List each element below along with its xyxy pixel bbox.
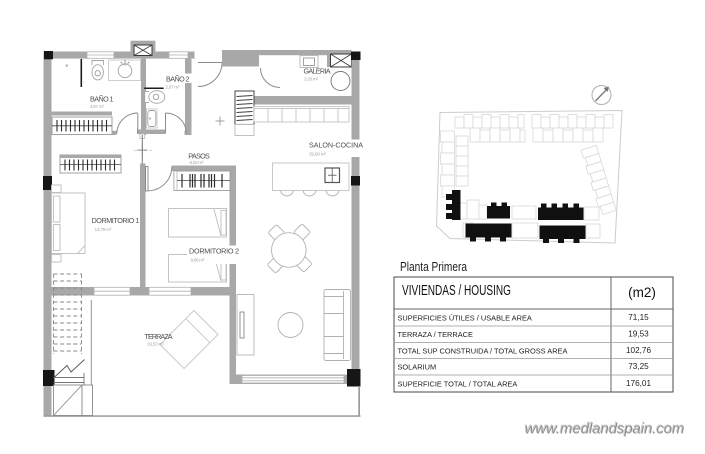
svg-text:71,15: 71,15 — [628, 313, 649, 322]
svg-text:SALON-COCINA: SALON-COCINA — [309, 141, 363, 150]
svg-text:TERRAZA / TERRACE: TERRAZA / TERRACE — [398, 330, 473, 339]
svg-text:DORMITORIO 1: DORMITORIO 1 — [92, 216, 140, 225]
svg-text:73,25: 73,25 — [628, 362, 649, 371]
svg-text:19,53 m²: 19,53 m² — [147, 342, 164, 348]
svg-text:19,53: 19,53 — [628, 330, 649, 339]
svg-text:GALERIA: GALERIA — [304, 67, 331, 76]
svg-text:SOLARIUM: SOLARIUM — [398, 363, 437, 372]
svg-text:DORMITORIO 2: DORMITORIO 2 — [189, 247, 239, 256]
svg-text:SUPERFICIES ÚTILES / USABLE AR: SUPERFICIES ÚTILES / USABLE AREA — [398, 314, 532, 323]
svg-text:TERRAZA: TERRAZA — [145, 332, 173, 341]
svg-text:BAÑO 1: BAÑO 1 — [90, 95, 114, 104]
svg-text:2,97 m²: 2,97 m² — [166, 84, 180, 90]
svg-text:SUPERFICIE TOTAL / TOTAL AREA: SUPERFICIE TOTAL / TOTAL AREA — [398, 380, 518, 389]
svg-text:www.medlandspain.com: www.medlandspain.com — [525, 422, 685, 438]
svg-text:176,01: 176,01 — [626, 379, 651, 388]
svg-text:9,66 m²: 9,66 m² — [191, 257, 205, 263]
svg-text:29,89 m²: 29,89 m² — [309, 151, 326, 157]
svg-text:Planta Primera: Planta Primera — [400, 259, 468, 274]
svg-text:6,02 m²: 6,02 m² — [190, 160, 204, 166]
svg-text:4,97 m²: 4,97 m² — [90, 104, 104, 110]
svg-text:TOTAL SUP CONSTRUIDA / TOTAL G: TOTAL SUP CONSTRUIDA / TOTAL GROSS AREA — [398, 347, 568, 356]
svg-text:BAÑO 2: BAÑO 2 — [166, 75, 190, 84]
svg-text:3,33 m²: 3,33 m² — [304, 76, 318, 82]
svg-text:102,76: 102,76 — [626, 346, 651, 355]
svg-text:PASOS: PASOS — [188, 151, 210, 160]
svg-text:(m2): (m2) — [628, 285, 656, 300]
svg-text:VIVIENDAS / HOUSING: VIVIENDAS / HOUSING — [402, 283, 511, 299]
svg-text:13,79 m²: 13,79 m² — [95, 227, 112, 233]
